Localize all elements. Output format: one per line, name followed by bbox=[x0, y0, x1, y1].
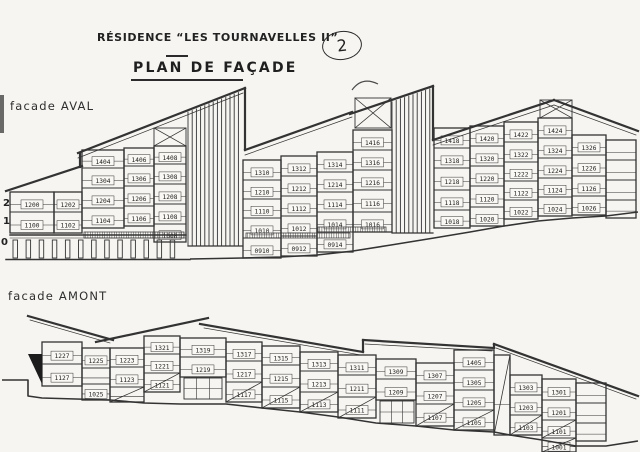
unit-number: 1116 bbox=[365, 201, 380, 208]
unit-number: 1319 bbox=[196, 347, 211, 354]
unit-number: 1202 bbox=[61, 202, 76, 209]
arcade-post bbox=[26, 240, 31, 258]
unit-number: 1222 bbox=[514, 171, 529, 178]
unit-number: 1212 bbox=[292, 186, 307, 193]
brace-diagonal bbox=[262, 387, 300, 408]
unit-number: 1113 bbox=[312, 402, 327, 409]
unit-number: 1204 bbox=[96, 198, 111, 205]
unit-number: 1215 bbox=[274, 376, 289, 383]
unit-number: 1404 bbox=[96, 159, 111, 166]
facade-elevation-drawing: 1200110012021102140413041204110414061306… bbox=[0, 0, 640, 452]
facade-amont-drawing: 1227112712251025122311231321122111211319… bbox=[2, 316, 638, 452]
unit-number: 1318 bbox=[445, 158, 460, 165]
unit-number: 1117 bbox=[237, 392, 252, 399]
unit-number: 1111 bbox=[350, 408, 365, 415]
unit-number: 1018 bbox=[445, 219, 460, 226]
unit-number: 0914 bbox=[328, 242, 343, 249]
unit-number: 1118 bbox=[445, 200, 460, 207]
arcade-post bbox=[105, 240, 110, 258]
unit-number: 1115 bbox=[274, 398, 289, 405]
unit-number: 1217 bbox=[237, 372, 252, 379]
unit-number: 1123 bbox=[120, 377, 135, 384]
unit-number: 1219 bbox=[196, 367, 211, 374]
unit-number: 1105 bbox=[467, 420, 482, 427]
roof-fascia-line bbox=[30, 320, 110, 343]
unit-column bbox=[606, 140, 636, 218]
unit-number: 1210 bbox=[255, 189, 270, 196]
unit-number: 1322 bbox=[514, 152, 529, 159]
unit-number: 1422 bbox=[514, 132, 529, 139]
arcade-post bbox=[131, 240, 136, 258]
arcade-post bbox=[170, 240, 175, 258]
unit-number: 1108 bbox=[163, 214, 178, 221]
unit-number: 1317 bbox=[237, 351, 252, 358]
unit-number: 1311 bbox=[350, 365, 365, 372]
arcade-post bbox=[39, 240, 44, 258]
unit-number: 1308 bbox=[163, 174, 178, 181]
unit-number: 1110 bbox=[255, 208, 270, 215]
unit-number: 1221 bbox=[155, 363, 170, 370]
roof-line bbox=[78, 88, 245, 153]
unit-number: 1320 bbox=[480, 156, 495, 163]
roof-line bbox=[245, 112, 352, 150]
unit-number: 1309 bbox=[389, 369, 404, 376]
unit-number: 1205 bbox=[467, 400, 482, 407]
unit-number: 1225 bbox=[89, 358, 104, 365]
unit-number: 1313 bbox=[312, 361, 327, 368]
corner-shadow-triangle bbox=[28, 354, 42, 384]
roof-fascia-line bbox=[78, 93, 243, 158]
pen-mark bbox=[352, 81, 378, 90]
unit-number: 1405 bbox=[467, 360, 482, 367]
arcade-post bbox=[118, 240, 123, 258]
unit-number: 1227 bbox=[55, 353, 70, 360]
unit-number: 1306 bbox=[132, 176, 147, 183]
unit-number: 1304 bbox=[96, 178, 111, 185]
unit-number: 1100 bbox=[25, 223, 40, 230]
floor-axis-label: 0 bbox=[1, 237, 8, 248]
unit-number: 1408 bbox=[163, 155, 178, 162]
floor-axis-label: 2 bbox=[3, 198, 10, 209]
unit-number: 1326 bbox=[582, 145, 597, 152]
roof-line bbox=[350, 86, 433, 114]
unit-number: 1012 bbox=[292, 226, 307, 233]
roof-line bbox=[6, 166, 82, 191]
unit-number: 1209 bbox=[389, 390, 404, 397]
unit-number: 1211 bbox=[350, 386, 365, 393]
unit-number: 1424 bbox=[548, 128, 563, 135]
roof-line bbox=[28, 316, 113, 340]
arcade-post bbox=[157, 240, 162, 258]
arcade-post bbox=[92, 240, 97, 258]
unit-number: 1120 bbox=[480, 197, 495, 204]
unit-number: 1127 bbox=[55, 375, 70, 382]
unit-number: 1121 bbox=[155, 382, 170, 389]
unit-number: 1203 bbox=[519, 405, 534, 412]
unit-number: 1206 bbox=[132, 196, 147, 203]
arcade-post bbox=[52, 240, 57, 258]
unit-number: 1102 bbox=[61, 223, 76, 230]
unit-number: 1316 bbox=[365, 160, 380, 167]
unit-number: 1218 bbox=[445, 179, 460, 186]
unit-number: 1310 bbox=[255, 170, 270, 177]
brace-diagonal bbox=[416, 404, 454, 426]
brace-diagonal bbox=[494, 355, 510, 435]
unit-number: 1303 bbox=[519, 385, 534, 392]
unit-number: 1104 bbox=[96, 218, 111, 225]
unit-number: 1224 bbox=[548, 168, 563, 175]
roof-line bbox=[554, 100, 638, 131]
facade-plan-page: RÉSIDENCE “LES TOURNAVELLES II” PLAN DE … bbox=[0, 0, 640, 452]
unit-number: 0910 bbox=[255, 248, 270, 255]
unit-number: 1114 bbox=[328, 202, 343, 209]
unit-number: 1315 bbox=[274, 355, 289, 362]
unit-number: 1226 bbox=[582, 166, 597, 173]
roof-line bbox=[363, 340, 494, 348]
unit-column bbox=[576, 383, 606, 441]
floor-axis-label: 1 bbox=[3, 216, 10, 227]
unit-number: 1207 bbox=[428, 394, 443, 401]
unit-number: 1020 bbox=[480, 216, 495, 223]
unit-number: 1312 bbox=[292, 166, 307, 173]
arcade-post bbox=[13, 240, 18, 258]
unit-number: 1321 bbox=[155, 345, 170, 352]
roof-fascia-line bbox=[245, 117, 352, 155]
unit-number: 1022 bbox=[514, 209, 529, 216]
unit-number: 1010 bbox=[255, 228, 270, 235]
brace-diagonal bbox=[338, 397, 376, 418]
unit-number: 1025 bbox=[89, 392, 104, 399]
unit-number: 1314 bbox=[328, 162, 343, 169]
unit-number: 1305 bbox=[467, 380, 482, 387]
unit-number: 1418 bbox=[445, 138, 460, 145]
unit-number: 1201 bbox=[552, 410, 567, 417]
arcade-post bbox=[144, 240, 149, 258]
unit-number: 1307 bbox=[428, 373, 443, 380]
unit-number: 1122 bbox=[514, 190, 529, 197]
unit-number: 1214 bbox=[328, 182, 343, 189]
unit-number: 1014 bbox=[328, 222, 343, 229]
unit-number: 1416 bbox=[365, 140, 380, 147]
arcade-post bbox=[65, 240, 70, 258]
unit-number: 1124 bbox=[548, 187, 563, 194]
unit-number: 1208 bbox=[163, 194, 178, 201]
unit-number: 1223 bbox=[120, 357, 135, 364]
unit-number: 1301 bbox=[552, 390, 567, 397]
unit-number: 1024 bbox=[548, 206, 563, 213]
unit-number: 1216 bbox=[365, 180, 380, 187]
unit-number: 1213 bbox=[312, 382, 327, 389]
unit-number: 1406 bbox=[132, 157, 147, 164]
unit-number: 1107 bbox=[428, 415, 443, 422]
unit-number: 1200 bbox=[25, 202, 40, 209]
facade-aval-drawing: 1200110012021102140413041204110414061306… bbox=[1, 86, 638, 260]
unit-number: 0912 bbox=[292, 246, 307, 253]
unit-number: 1101 bbox=[552, 429, 567, 436]
unit-number: 1324 bbox=[548, 148, 563, 155]
arcade-post bbox=[79, 240, 84, 258]
unit-number: 1420 bbox=[480, 136, 495, 143]
unit-number: 1106 bbox=[132, 216, 147, 223]
unit-number: 1026 bbox=[582, 205, 597, 212]
unit-number: 1112 bbox=[292, 206, 307, 213]
unit-number: 1220 bbox=[480, 176, 495, 183]
unit-number: 1126 bbox=[582, 186, 597, 193]
